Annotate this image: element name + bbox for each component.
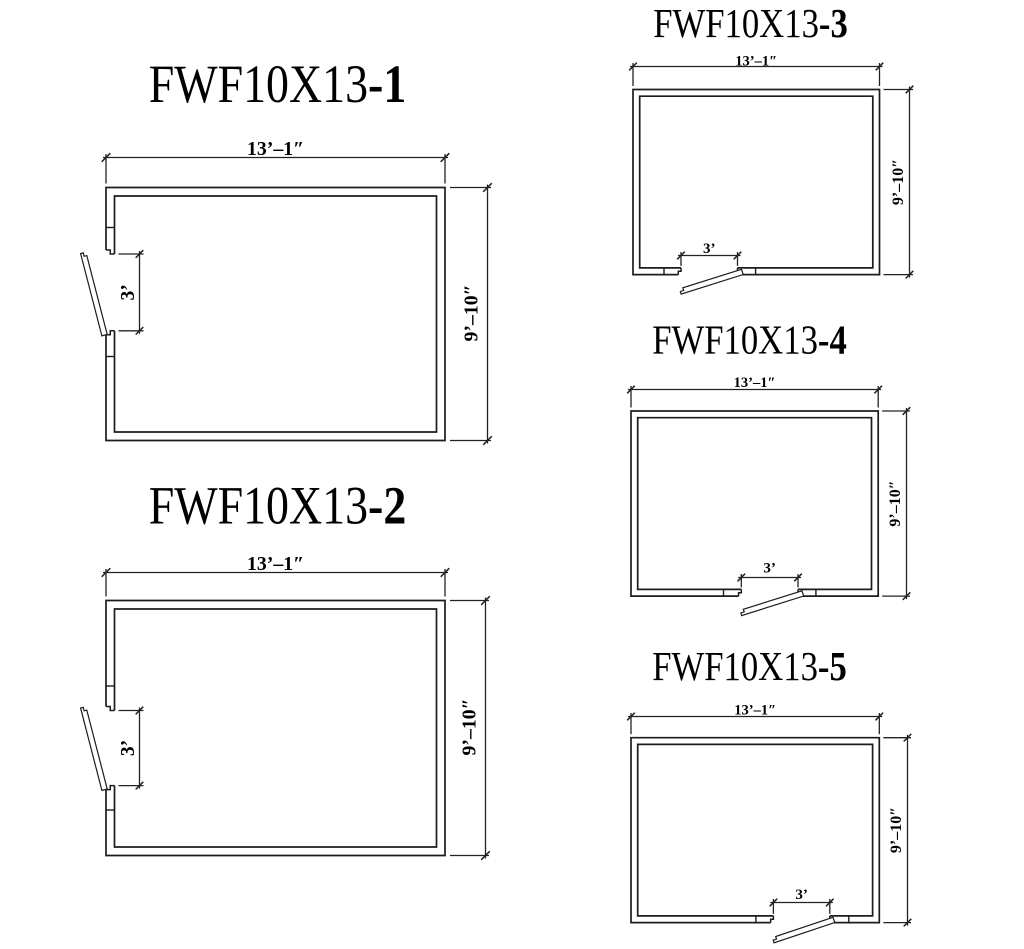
- svg-text:13’–1″: 13’–1″: [735, 54, 777, 70]
- svg-text:9’–10″: 9’–10″: [888, 807, 905, 853]
- svg-text:13’–1″: 13’–1″: [734, 375, 776, 391]
- svg-text:13’–1″: 13’–1″: [247, 138, 304, 160]
- svg-text:FWF10X13-4: FWF10X13-4: [652, 318, 847, 363]
- svg-text:9’–10″: 9’–10″: [890, 159, 907, 205]
- svg-text:FWF10X13-1: FWF10X13-1: [149, 54, 407, 114]
- svg-text:9’–10″: 9’–10″: [887, 480, 904, 526]
- svg-text:9’–10″: 9’–10″: [459, 698, 481, 755]
- svg-text:FWF10X13-3: FWF10X13-3: [653, 1, 848, 46]
- svg-text:3’: 3’: [795, 887, 808, 903]
- svg-text:3’: 3’: [118, 284, 139, 300]
- svg-text:13’–1″: 13’–1″: [247, 553, 304, 575]
- svg-text:FWF10X13-5: FWF10X13-5: [652, 644, 847, 689]
- svg-text:3’: 3’: [763, 561, 776, 577]
- svg-text:13’–1″: 13’–1″: [734, 703, 776, 719]
- svg-text:FWF10X13-2: FWF10X13-2: [149, 475, 407, 535]
- svg-text:3’: 3’: [118, 740, 139, 756]
- svg-text:3’: 3’: [703, 241, 716, 257]
- svg-text:9’–10″: 9’–10″: [461, 284, 483, 341]
